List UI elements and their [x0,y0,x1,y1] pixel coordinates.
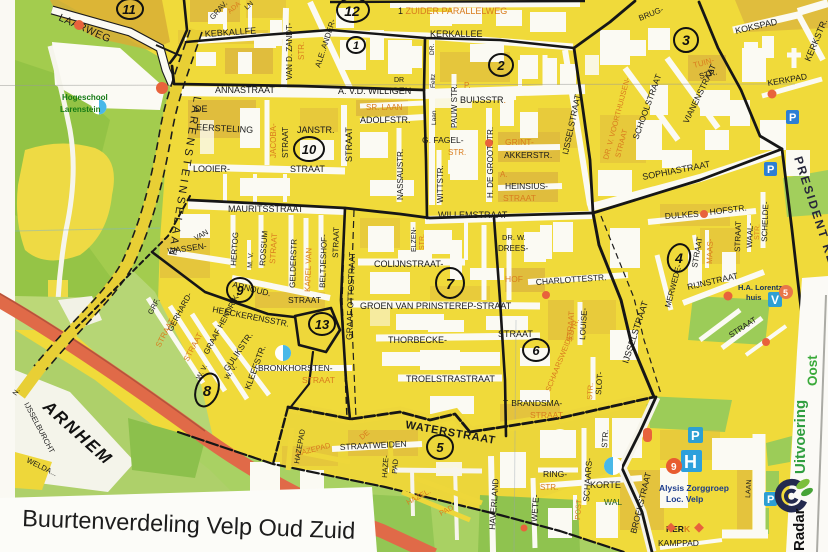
svg-text:10: 10 [302,142,317,157]
svg-text:STRAAT: STRAAT [331,227,341,258]
svg-text:P.: P. [464,81,471,90]
svg-text:Larenstein: Larenstein [60,105,101,114]
svg-text:LAAN: LAAN [745,479,753,498]
svg-text:Oost: Oost [805,355,820,386]
svg-text:2: 2 [496,58,505,73]
svg-text:V: V [771,293,779,307]
svg-text:BELTJESHOF-: BELTJESHOF- [318,234,329,288]
svg-text:KORTE: KORTE [590,480,621,490]
svg-text:TROELSTRASTRAAT: TROELSTRASTRAAT [406,374,495,384]
svg-text:ANNASTRAAT: ANNASTRAAT [215,85,275,95]
svg-text:AKKERSTR.: AKKERSTR. [504,150,552,160]
svg-text:Hogeschool: Hogeschool [62,93,108,102]
svg-text:STR.: STR. [585,382,595,400]
svg-text:Loc. Velp: Loc. Velp [666,494,703,504]
svg-text:M. V.: M. V. [247,252,255,268]
svg-text:POST: POST [573,499,583,520]
svg-text:VAN D. ZANDT-: VAN D. ZANDT- [285,22,294,80]
svg-text:THORBECKE-: THORBECKE- [388,335,447,345]
svg-text:1: 1 [353,40,359,52]
svg-text:DR. W.: DR. W. [502,233,526,242]
svg-text:WITTSTR.: WITTSTR. [436,165,445,203]
svg-text:A.: A. [500,170,508,179]
svg-text:KERKALLEE: KERKALLEE [430,29,483,39]
svg-text:SLOT-: SLOT- [594,371,605,395]
svg-text:7: 7 [446,276,455,293]
svg-text:SCHELDE-: SCHELDE- [760,201,770,242]
svg-text:Laan: Laan [431,110,438,125]
svg-text:PAUW STR.: PAUW STR. [450,84,459,128]
svg-text:STRAAT: STRAAT [302,375,335,385]
svg-text:PAD: PAD [390,458,400,474]
svg-text:TBRANDSMA-: TBRANDSMA- [503,398,562,408]
svg-text:STRAAT: STRAAT [530,410,563,420]
svg-text:H: H [684,452,697,472]
svg-text:STR.: STR. [419,234,426,250]
svg-text:Alysis Zorggroep: Alysis Zorggroep [659,483,729,493]
svg-text:1 ZUIDER PARALLELWEG: 1 ZUIDER PARALLELWEG [398,6,507,16]
svg-text:NASSAUSTR.: NASSAUSTR. [396,149,405,200]
svg-text:STR.: STR. [600,429,610,448]
svg-text:LOOIER-: LOOIER- [193,164,230,174]
svg-text:GROEN VAN PRINSTEREP-STRAAT: GROEN VAN PRINSTEREP-STRAAT [360,301,512,311]
svg-text:HEINSIUS-: HEINSIUS- [505,181,548,191]
svg-text:DR.: DR. [429,44,436,55]
svg-text:MAAS-: MAAS- [705,238,715,264]
svg-text:P: P [789,112,796,124]
svg-text:huis: huis [746,293,761,302]
svg-text:3: 3 [682,32,690,48]
svg-text:ELZEN-: ELZEN- [411,226,418,252]
svg-text:Feltz: Feltz [430,74,437,88]
svg-text:DR: DR [394,77,404,84]
svg-text:HAZE-: HAZE- [380,455,391,479]
svg-text:SR. LAAN: SR. LAAN [366,103,403,112]
svg-text:ADOLFSTR.: ADOLFSTR. [360,115,411,125]
svg-text:JANSTR.: JANSTR. [297,125,335,135]
svg-text:9: 9 [671,462,677,473]
svg-text:5: 5 [783,288,788,298]
svg-text:P: P [691,428,700,443]
svg-text:G. FAGEL-: G. FAGEL- [422,135,464,145]
svg-text:8: 8 [203,383,212,400]
svg-text:COLIJNSTRAAT-: COLIJNSTRAAT- [374,259,443,269]
svg-text:9: 9 [236,283,244,298]
svg-text:13: 13 [315,317,330,332]
svg-text:MAURITSSTRAAT: MAURITSSTRAAT [228,204,304,214]
svg-text:GRINT-: GRINT- [505,137,534,147]
svg-text:STRAAT: STRAAT [498,329,533,339]
svg-text:5: 5 [436,440,444,455]
svg-text:STRAAT: STRAAT [344,127,354,162]
svg-text:JACOBA-: JACOBA- [269,123,278,158]
svg-text:STR.: STR. [297,42,306,60]
svg-text:RING-: RING- [543,469,567,479]
svg-text:WAL: WAL [604,497,622,507]
svg-text:STRAAT: STRAAT [733,221,743,252]
svg-text:WETE-: WETE- [529,494,541,522]
svg-text:A. V.D. WILLIGEN: A. V.D. WILLIGEN [338,86,411,96]
svg-text:KAMPPAD: KAMPPAD [658,538,699,548]
svg-text:STR.: STR. [448,148,466,157]
svg-text:STR.: STR. [540,483,558,492]
svg-text:11: 11 [122,2,136,17]
svg-text:STRAAT: STRAAT [281,127,290,158]
svg-text:6: 6 [532,343,540,358]
svg-text:GELDERSTR: GELDERSTR [288,239,299,288]
svg-text:BRONKHORSTEN-: BRONKHORSTEN- [258,363,333,373]
svg-text:WILLEMSTRAAT: WILLEMSTRAAT [438,210,508,220]
svg-text:BUIJSSTR.: BUIJSSTR. [460,95,506,105]
svg-text:P: P [767,494,774,506]
svg-text:HOF: HOF [505,274,523,284]
svg-text:Radar: Radar [791,508,808,551]
svg-text:STRAAT: STRAAT [503,193,536,203]
svg-text:4: 4 [674,250,683,266]
svg-text:H.A. Lorentz-: H.A. Lorentz- [738,283,785,292]
svg-text:DREES-: DREES- [498,244,529,253]
svg-text:P: P [767,164,774,176]
svg-text:KAREL VAN: KAREL VAN [303,248,314,293]
svg-text:Uitvoering: Uitvoering [792,400,809,474]
svg-text:12: 12 [344,3,360,19]
svg-text:H. DE GROOTSTR.: H. DE GROOTSTR. [486,127,495,198]
svg-text:STRAAT: STRAAT [288,295,321,305]
svg-text:STRAAT: STRAAT [290,164,325,174]
